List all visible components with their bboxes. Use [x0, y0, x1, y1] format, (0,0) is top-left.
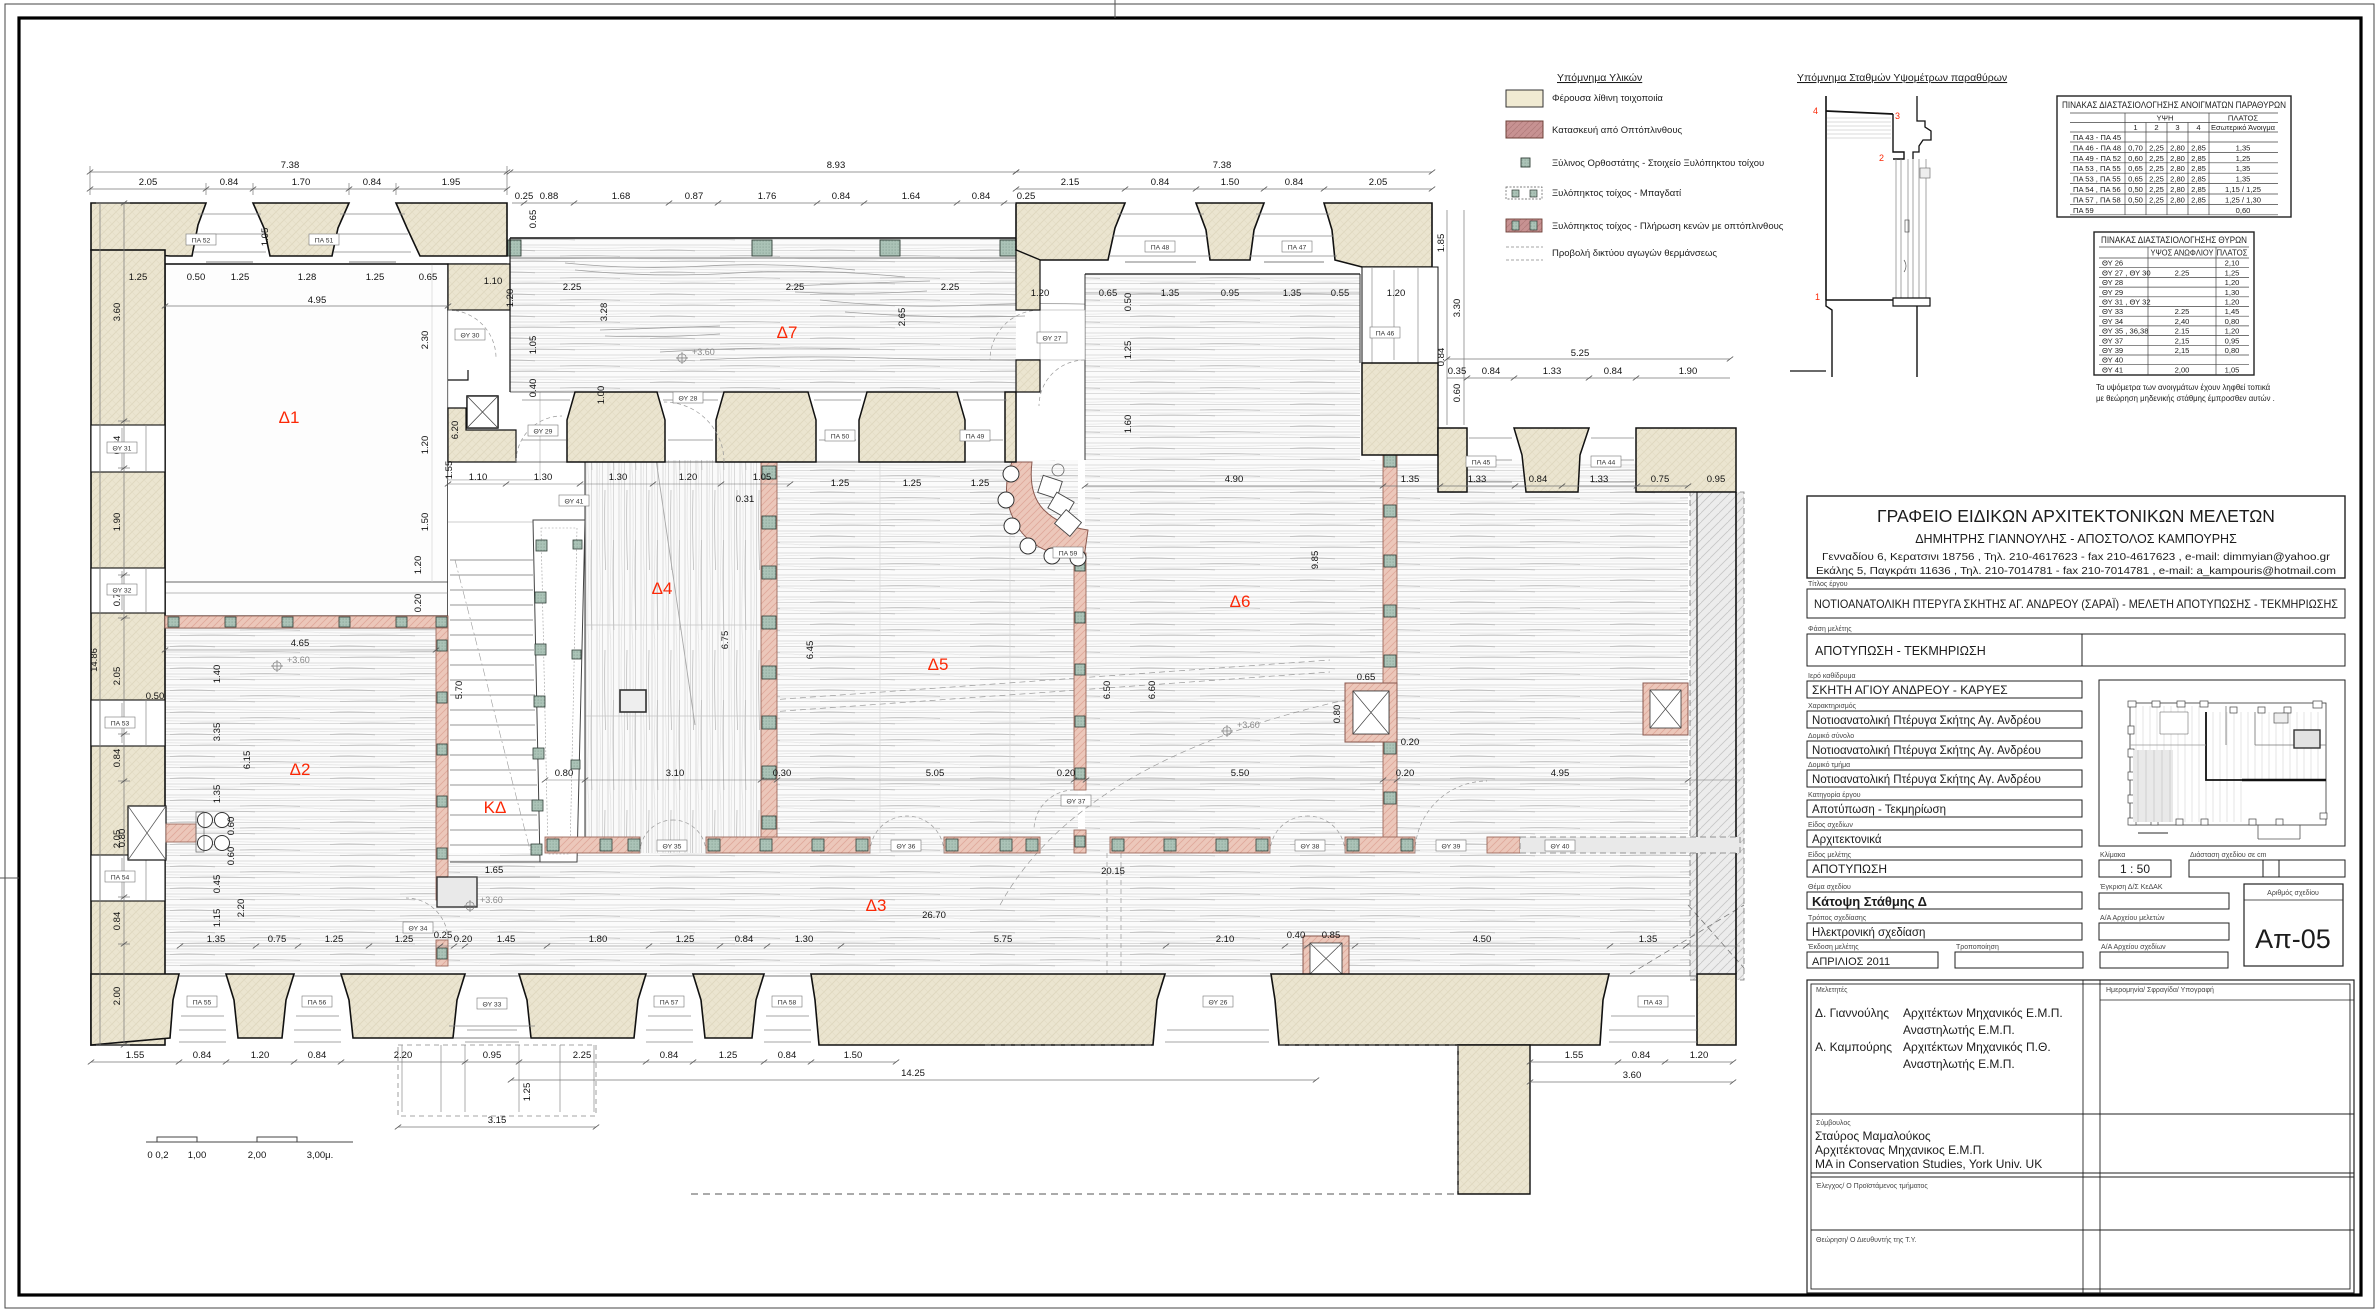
svg-text:4.50: 4.50: [1473, 934, 1492, 945]
svg-text:1.00: 1.00: [596, 386, 607, 405]
svg-text:ΠΛΑΤΟΣ: ΠΛΑΤΟΣ: [2228, 114, 2258, 123]
svg-text:1.25: 1.25: [522, 1083, 533, 1102]
svg-text:2.10: 2.10: [1216, 934, 1235, 945]
svg-text:ΠΑ 55: ΠΑ 55: [193, 1000, 212, 1007]
svg-text:1.60: 1.60: [1123, 415, 1134, 434]
svg-text:Κλίμακα: Κλίμακα: [2100, 851, 2125, 859]
svg-text:6.20: 6.20: [450, 421, 461, 440]
svg-text:2,25: 2,25: [2149, 175, 2164, 184]
svg-text:Κατηγορία έργου: Κατηγορία έργου: [1808, 791, 1861, 799]
svg-text:0.50: 0.50: [146, 691, 165, 702]
svg-text:2,25: 2,25: [2149, 154, 2164, 163]
svg-text:Ημερομηνία/ Σφραγίδα/ Υπογραφή: Ημερομηνία/ Σφραγίδα/ Υπογραφή: [2106, 986, 2214, 994]
svg-text:Δ. Γιαννούλης: Δ. Γιαννούλης: [1815, 1006, 1889, 1020]
svg-text:Υπόμνημα Υλικών: Υπόμνημα Υλικών: [1557, 72, 1642, 84]
svg-text:0.80: 0.80: [1332, 705, 1343, 724]
svg-text:2.65: 2.65: [897, 308, 908, 327]
svg-text:Δ5: Δ5: [928, 655, 949, 674]
svg-text:Θεώρηση/ Ο Διευθυντής της Τ.Υ.: Θεώρηση/ Ο Διευθυντής της Τ.Υ.: [1816, 1236, 1916, 1244]
svg-text:ΘΥ 34: ΘΥ 34: [409, 926, 428, 933]
svg-text:0.50: 0.50: [1123, 293, 1134, 312]
svg-text:1,15 / 1,25: 1,15 / 1,25: [2225, 185, 2261, 194]
svg-text:1,25: 1,25: [2236, 154, 2251, 163]
svg-text:0.80: 0.80: [117, 829, 128, 848]
svg-text:ΠΑ 48: ΠΑ 48: [1151, 245, 1170, 252]
svg-text:4: 4: [1813, 106, 1818, 116]
svg-text:1.10: 1.10: [469, 472, 488, 483]
svg-text:0.84: 0.84: [220, 177, 239, 188]
svg-text:0.84: 0.84: [363, 177, 382, 188]
svg-text:ΘΥ 37: ΘΥ 37: [1067, 799, 1086, 806]
svg-text:2.00: 2.00: [112, 987, 123, 1006]
svg-text:ΘΥ 37: ΘΥ 37: [2102, 336, 2123, 345]
svg-text:1,05: 1,05: [2225, 365, 2240, 374]
svg-text:ΠΑ 49: ΠΑ 49: [966, 434, 985, 441]
svg-text:ΘΥ 30: ΘΥ 30: [461, 333, 480, 340]
svg-text:0,65: 0,65: [2128, 175, 2143, 184]
svg-text:1.20: 1.20: [420, 436, 431, 455]
svg-text:5.75: 5.75: [994, 934, 1013, 945]
svg-text:ΑΠΡΙΛΙΟΣ 2011: ΑΠΡΙΛΙΟΣ 2011: [1812, 956, 1890, 968]
svg-text:ΠΑ 43: ΠΑ 43: [1644, 1000, 1663, 1007]
svg-text:0.25: 0.25: [434, 930, 453, 941]
svg-text:6.75: 6.75: [720, 631, 731, 650]
svg-text:ΘΥ 35: ΘΥ 35: [663, 844, 682, 851]
svg-text:ΠΑ 57: ΠΑ 57: [660, 1000, 679, 1007]
svg-text:Αρχιτέκτων Μηχανικός Ε.Μ.Π.: Αρχιτέκτων Μηχανικός Ε.Μ.Π.: [1903, 1006, 2063, 1020]
svg-text:ΠΑ 58: ΠΑ 58: [778, 1000, 797, 1007]
svg-text:1,00: 1,00: [188, 1150, 207, 1161]
svg-text:0.95: 0.95: [483, 1050, 502, 1061]
svg-text:6.45: 6.45: [805, 641, 816, 660]
svg-text:ΠΑ 43 - ΠΑ 45: ΠΑ 43 - ΠΑ 45: [2073, 133, 2121, 142]
svg-text:5.05: 5.05: [926, 768, 945, 779]
svg-text:3: 3: [1895, 111, 1900, 121]
svg-text:3.60: 3.60: [112, 303, 123, 322]
svg-text:1,30: 1,30: [2225, 288, 2240, 297]
svg-text:Δομικό σύνολο: Δομικό σύνολο: [1808, 732, 1854, 740]
svg-text:1.95: 1.95: [442, 177, 461, 188]
svg-text:3.30: 3.30: [1452, 299, 1463, 318]
svg-text:0,80: 0,80: [2225, 346, 2240, 355]
svg-text:Νοτιοανατολική Πτέρυγα Σκήτης: Νοτιοανατολική Πτέρυγα Σκήτης Αγ. Ανδρέο…: [1812, 745, 2041, 757]
svg-text:0,60: 0,60: [2128, 154, 2143, 163]
svg-text:1,35: 1,35: [2236, 143, 2251, 152]
svg-text:2,00: 2,00: [2175, 365, 2190, 374]
svg-text:0.84: 0.84: [1285, 177, 1304, 188]
svg-text:2,25: 2,25: [2149, 143, 2164, 152]
svg-text:0.65: 0.65: [419, 272, 438, 283]
svg-text:ΘΥ 33: ΘΥ 33: [483, 1002, 502, 1009]
svg-text:3,00μ.: 3,00μ.: [307, 1150, 334, 1161]
svg-text:ΠΑ 52: ΠΑ 52: [192, 238, 211, 245]
svg-text:0.84: 0.84: [1482, 366, 1501, 377]
svg-text:1.05: 1.05: [753, 472, 772, 483]
svg-text:2,80: 2,80: [2170, 154, 2185, 163]
svg-text:ΘΥ 36: ΘΥ 36: [897, 844, 916, 851]
svg-text:ΓΡΑΦΕΙΟ ΕΙΔΙΚΩΝ ΑΡΧΙΤΕΚΤΟΝΙΚΩΝ: ΓΡΑΦΕΙΟ ΕΙΔΙΚΩΝ ΑΡΧΙΤΕΚΤΟΝΙΚΩΝ ΜΕΛΕΤΩΝ: [1877, 506, 2275, 526]
svg-text:1.80: 1.80: [589, 934, 608, 945]
svg-text:ΘΥ 26: ΘΥ 26: [2102, 259, 2123, 268]
svg-text:0.95: 0.95: [1221, 288, 1240, 299]
svg-text:0.65: 0.65: [1357, 672, 1376, 683]
svg-text:2,85: 2,85: [2191, 143, 2206, 152]
svg-text:1.25: 1.25: [831, 478, 850, 489]
svg-text:0.84: 0.84: [193, 1050, 212, 1061]
svg-text:+3.60: +3.60: [480, 895, 503, 905]
svg-text:1.65: 1.65: [485, 865, 504, 876]
svg-text:2.25: 2.25: [2175, 268, 2190, 277]
svg-text:ΠΑ 56: ΠΑ 56: [308, 1000, 327, 1007]
svg-text:1.90: 1.90: [1679, 366, 1698, 377]
svg-text:0.40: 0.40: [528, 379, 539, 398]
svg-text:Δ4: Δ4: [652, 579, 673, 598]
svg-text:ΠΙΝΑΚΑΣ ΔΙΑΣΤΑΣΙΟΛΟΓΗΣΗΣ ΘΥΡ: ΠΙΝΑΚΑΣ ΔΙΑΣΤΑΣΙΟΛΟΓΗΣΗΣ ΘΥΡΩΝ: [2101, 235, 2247, 245]
svg-text:1.25: 1.25: [903, 478, 922, 489]
svg-text:2: 2: [2154, 123, 2158, 132]
svg-text:Αρχιτέκτων Μηχανικός Π.Θ.: Αρχιτέκτων Μηχανικός Π.Θ.: [1903, 1040, 2051, 1054]
svg-text:1.15: 1.15: [212, 909, 223, 928]
svg-text:4.65: 4.65: [291, 638, 310, 649]
svg-text:1.90: 1.90: [112, 513, 123, 532]
svg-text:2,85: 2,85: [2191, 164, 2206, 173]
svg-text:Α/Α Αρχείου μελετών: Α/Α Αρχείου μελετών: [2100, 914, 2165, 922]
svg-text:0.31: 0.31: [736, 494, 755, 505]
svg-text:ΠΑ 53 , ΠΑ 55: ΠΑ 53 , ΠΑ 55: [2073, 164, 2121, 173]
svg-text:2.05: 2.05: [139, 177, 158, 188]
svg-text:1.33: 1.33: [1468, 474, 1487, 485]
svg-text:1.25: 1.25: [395, 934, 414, 945]
svg-text:1.45: 1.45: [497, 934, 516, 945]
svg-text:ΘΥ 27 , ΘΥ 30: ΘΥ 27 , ΘΥ 30: [2102, 268, 2151, 277]
svg-text:Είδος σχεδίων: Είδος σχεδίων: [1808, 821, 1853, 829]
svg-text:ΠΑ 46 - ΠΑ 48: ΠΑ 46 - ΠΑ 48: [2073, 143, 2121, 152]
svg-text:2,25: 2,25: [2149, 164, 2164, 173]
svg-text:0.75: 0.75: [268, 934, 287, 945]
svg-text:Έγκριση Δ/Σ ΚεΔΑΚ: Έγκριση Δ/Σ ΚεΔΑΚ: [2099, 884, 2163, 891]
svg-text:1.70: 1.70: [292, 177, 311, 188]
svg-text:1.20: 1.20: [251, 1050, 270, 1061]
svg-text:Δ3: Δ3: [866, 896, 887, 915]
svg-text:0.87: 0.87: [685, 191, 704, 202]
svg-text:6.15: 6.15: [242, 751, 253, 770]
svg-text:1.68: 1.68: [612, 191, 631, 202]
svg-text:ΚΔ: ΚΔ: [484, 798, 507, 817]
svg-text:2,80: 2,80: [2170, 185, 2185, 194]
svg-text:2,80: 2,80: [2170, 195, 2185, 204]
svg-text:Δομικό τμήμα: Δομικό τμήμα: [1808, 761, 1850, 769]
svg-text:ΠΑ 53 , ΠΑ 55: ΠΑ 53 , ΠΑ 55: [2073, 175, 2121, 184]
svg-text:Δ6: Δ6: [1230, 592, 1251, 611]
svg-text:ΑΠΟΤΥΠΩΣΗ: ΑΠΟΤΥΠΩΣΗ: [1812, 862, 1887, 876]
svg-text:14.86: 14.86: [89, 648, 100, 672]
svg-text:0.60: 0.60: [226, 817, 237, 836]
svg-text:1.35: 1.35: [1161, 288, 1180, 299]
svg-text:0.20: 0.20: [413, 594, 424, 613]
svg-text:0,80: 0,80: [2225, 317, 2240, 326]
svg-text:3.35: 3.35: [212, 723, 223, 742]
svg-text:0.84: 0.84: [1604, 366, 1623, 377]
svg-text:0 0,2: 0 0,2: [147, 1150, 168, 1161]
svg-text:7.38: 7.38: [1213, 160, 1232, 171]
svg-text:Απ-05: Απ-05: [2255, 924, 2331, 954]
svg-text:Προβολή δικτύου αγωγών θερμάνσ: Προβολή δικτύου αγωγών θερμάνσεως: [1552, 248, 1717, 259]
svg-text:8.93: 8.93: [827, 160, 846, 171]
svg-text:4.90: 4.90: [1225, 474, 1244, 485]
svg-text:ΠΑ 47: ΠΑ 47: [1288, 245, 1307, 252]
svg-text:3: 3: [2175, 123, 2179, 132]
svg-text:2.05: 2.05: [1369, 177, 1388, 188]
svg-text:5.25: 5.25: [1571, 348, 1590, 359]
svg-text:ΘΥ 29: ΘΥ 29: [534, 429, 553, 436]
svg-text:ΠΑ 50: ΠΑ 50: [831, 434, 850, 441]
svg-text:1.20: 1.20: [413, 556, 424, 575]
svg-text:1.35: 1.35: [212, 785, 223, 804]
svg-text:ΘΥ 28: ΘΥ 28: [2102, 278, 2123, 287]
svg-text:0.95: 0.95: [1707, 474, 1726, 485]
svg-text:0.25: 0.25: [515, 191, 534, 202]
svg-text:1,20: 1,20: [2225, 278, 2240, 287]
svg-text:ΘΥ 32: ΘΥ 32: [113, 588, 132, 595]
svg-text:2,00: 2,00: [248, 1150, 267, 1161]
svg-text:Ξύλινος Ορθοστάτης - Στοιχείο: Ξύλινος Ορθοστάτης - Στοιχείο Ξυλόπηκτου…: [1552, 158, 1764, 169]
svg-text:2.25: 2.25: [573, 1050, 592, 1061]
svg-text:ΑΠΟΤΥΠΩΣΗ - ΤΕΚΜΗΡΙΩΣΗ: ΑΠΟΤΥΠΩΣΗ - ΤΕΚΜΗΡΙΩΣΗ: [1815, 644, 1986, 658]
svg-text:1,20: 1,20: [2225, 327, 2240, 336]
svg-text:+3.60: +3.60: [287, 655, 310, 665]
svg-text:2.15: 2.15: [2175, 327, 2190, 336]
svg-text:5.50: 5.50: [1231, 768, 1250, 779]
svg-text:0.40: 0.40: [1287, 930, 1306, 941]
svg-text:ΠΑ 57 , ΠΑ 58: ΠΑ 57 , ΠΑ 58: [2073, 195, 2121, 204]
svg-text:ΘΥ 41: ΘΥ 41: [565, 499, 584, 506]
svg-text:0.45: 0.45: [212, 875, 223, 894]
svg-text:1.25: 1.25: [325, 934, 344, 945]
svg-text:1.25: 1.25: [971, 478, 990, 489]
svg-text:2,85: 2,85: [2191, 154, 2206, 163]
svg-text:Τρόπος σχεδίασης: Τρόπος σχεδίασης: [1808, 914, 1867, 922]
svg-text:0,50: 0,50: [2128, 195, 2143, 204]
svg-text:0.84: 0.84: [112, 749, 123, 768]
svg-text:3.28: 3.28: [599, 303, 610, 322]
svg-text:Τα υψόμετρα των ανοιγμάτων έχ: Τα υψόμετρα των ανοιγμάτων έχουν ληφθεί …: [2096, 383, 2271, 392]
svg-text:ΘΥ 35 , 36,38: ΘΥ 35 , 36,38: [2102, 327, 2148, 336]
svg-text:ΠΑ 45: ΠΑ 45: [1472, 460, 1491, 467]
svg-text:1.20: 1.20: [679, 472, 698, 483]
svg-text:ΠΑ 59: ΠΑ 59: [1059, 551, 1078, 558]
svg-text:0.25: 0.25: [1017, 191, 1036, 202]
svg-text:1.30: 1.30: [609, 472, 628, 483]
svg-text:ΘΥ 26: ΘΥ 26: [1209, 1000, 1228, 1007]
svg-text:Ξυλόπηκτος τοίχος - Πλήρωση κε: Ξυλόπηκτος τοίχος - Πλήρωση κενών με οπτ…: [1552, 221, 1784, 232]
svg-text:0.84: 0.84: [1151, 177, 1170, 188]
svg-text:Δ7: Δ7: [777, 323, 798, 342]
svg-text:1 : 50: 1 : 50: [2120, 862, 2150, 876]
svg-text:Τίτλος έργου: Τίτλος έργου: [1808, 580, 1848, 588]
svg-text:ΣΚΗΤΗ ΑΓΙΟΥ ΑΝΔΡΕΟΥ - ΚΑΡΥΕΣ: ΣΚΗΤΗ ΑΓΙΟΥ ΑΝΔΡΕΟΥ - ΚΑΡΥΕΣ: [1812, 683, 2008, 697]
svg-text:0.20: 0.20: [454, 934, 473, 945]
svg-text:1.35: 1.35: [207, 934, 226, 945]
svg-text:0.35: 0.35: [1448, 366, 1467, 377]
svg-text:Νοτιοανατολική Πτέρυγα Σκήτης: Νοτιοανατολική Πτέρυγα Σκήτης Αγ. Ανδρέο…: [1812, 774, 2041, 786]
svg-text:Χαρακτηρισμός: Χαρακτηρισμός: [1808, 702, 1857, 710]
svg-text:2.05: 2.05: [112, 667, 123, 686]
svg-text:ΘΥ 33: ΘΥ 33: [2102, 307, 2123, 316]
svg-text:0,70: 0,70: [2128, 143, 2143, 152]
svg-text:1.20: 1.20: [1031, 288, 1050, 299]
svg-text:0,95: 0,95: [2225, 336, 2240, 345]
svg-text:0.88: 0.88: [540, 191, 559, 202]
svg-text:9.85: 9.85: [1310, 551, 1321, 570]
svg-text:ΠΑ 46: ΠΑ 46: [1376, 331, 1395, 338]
svg-text:0.65: 0.65: [1099, 288, 1118, 299]
svg-text:Ξυλόπηκτος τοίχος - Μπαγδατί: Ξυλόπηκτος τοίχος - Μπαγδατί: [1552, 188, 1682, 199]
svg-text:1.50: 1.50: [844, 1050, 863, 1061]
svg-text:1.40: 1.40: [212, 665, 223, 684]
svg-text:1.64: 1.64: [902, 191, 921, 202]
svg-text:ΔΗΜΗΤΡΗΣ ΓΙΑΝΝΟΥΛΗΣ - ΑΠΟΣΤΟ: ΔΗΜΗΤΡΗΣ ΓΙΑΝΝΟΥΛΗΣ - ΑΠΟΣΤΟΛΟΣ ΚΑΜΠΟΥΡΗ…: [1915, 532, 2237, 546]
svg-text:1.55: 1.55: [126, 1050, 145, 1061]
svg-text:+3.60: +3.60: [692, 347, 715, 357]
svg-text:Τροποποίηση: Τροποποίηση: [1956, 943, 1999, 951]
svg-text:1.50: 1.50: [1221, 177, 1240, 188]
svg-text:1.05: 1.05: [528, 336, 539, 355]
svg-text:0,65: 0,65: [2128, 164, 2143, 173]
svg-text:Εκάλης 5, Παγκράτι 11636 , Τηλ: Εκάλης 5, Παγκράτι 11636 , Τηλ. 210-7014…: [1816, 565, 2336, 577]
svg-text:Δ2: Δ2: [290, 760, 311, 779]
svg-text:2,15: 2,15: [2175, 336, 2190, 345]
svg-text:Αναστηλωτής Ε.Μ.Π.: Αναστηλωτής Ε.Μ.Π.: [1903, 1023, 2015, 1037]
svg-text:1: 1: [1815, 292, 1820, 302]
svg-text:ΠΑ 51: ΠΑ 51: [315, 238, 334, 245]
svg-text:Διάσταση σχεδίου σε cm: Διάσταση σχεδίου σε cm: [2190, 851, 2267, 859]
svg-text:0.50: 0.50: [187, 272, 206, 283]
svg-text:5.70: 5.70: [454, 681, 465, 700]
svg-text:ΘΥ 39: ΘΥ 39: [2102, 346, 2123, 355]
svg-text:1.35: 1.35: [1401, 474, 1420, 485]
svg-text:0.55: 0.55: [1331, 288, 1350, 299]
svg-text:Δ1: Δ1: [279, 408, 300, 427]
svg-text:Νοτιοανατολική Πτέρυγα Σκήτης: Νοτιοανατολική Πτέρυγα Σκήτης Αγ. Ανδρέο…: [1812, 715, 2041, 727]
svg-text:Αρχιτεκτονικά: Αρχιτεκτονικά: [1812, 834, 1882, 846]
svg-text:ΘΥ 31 , ΘΥ 32: ΘΥ 31 , ΘΥ 32: [2102, 298, 2151, 307]
svg-text:2,25: 2,25: [2149, 185, 2164, 194]
svg-text:3.10: 3.10: [666, 768, 685, 779]
svg-text:2,25: 2,25: [2149, 195, 2164, 204]
svg-text:1.20: 1.20: [1690, 1050, 1709, 1061]
svg-text:0.84: 0.84: [308, 1050, 327, 1061]
svg-text:1.55: 1.55: [1565, 1050, 1584, 1061]
svg-text:2,85: 2,85: [2191, 185, 2206, 194]
svg-text:1,25 / 1,30: 1,25 / 1,30: [2225, 195, 2261, 204]
svg-text:ΘΥ 39: ΘΥ 39: [1442, 844, 1461, 851]
svg-text:0.84: 0.84: [735, 934, 754, 945]
svg-text:1.76: 1.76: [758, 191, 777, 202]
svg-text:ΠΑ 53: ΠΑ 53: [111, 721, 130, 728]
svg-text:Σταύρος Μαμαλούκος: Σταύρος Μαμαλούκος: [1815, 1129, 1931, 1143]
svg-text:1.10: 1.10: [484, 276, 503, 287]
svg-text:Έκδοση μελέτης: Έκδοση μελέτης: [1807, 943, 1859, 951]
svg-text:ΘΥ 34: ΘΥ 34: [2102, 317, 2123, 326]
svg-text:ΘΥ 40: ΘΥ 40: [2102, 356, 2123, 365]
svg-text:ΠΑ 44: ΠΑ 44: [1597, 460, 1616, 467]
svg-text:Σύμβουλος: Σύμβουλος: [1816, 1119, 1851, 1127]
svg-text:0.20: 0.20: [1396, 768, 1415, 779]
svg-text:1.50: 1.50: [420, 513, 431, 532]
svg-text:Α. Καμπούρης: Α. Καμπούρης: [1815, 1040, 1892, 1054]
svg-text:ΝΟΤΙΟΑΝΑΤΟΛΙΚΗ ΠΤΕΡΥΓΑ ΣΚΗΤΗΣ: ΝΟΤΙΟΑΝΑΤΟΛΙΚΗ ΠΤΕΡΥΓΑ ΣΚΗΤΗΣ ΑΓ. ΑΝΔΡΕΟ…: [1814, 598, 2338, 611]
svg-text:4: 4: [2196, 123, 2200, 132]
svg-text:2,85: 2,85: [2191, 195, 2206, 204]
svg-text:Εσωτερικό Άνοιγμα: Εσωτερικό Άνοιγμα: [2211, 123, 2276, 132]
svg-text:0.30: 0.30: [773, 768, 792, 779]
svg-text:1,20: 1,20: [2225, 298, 2240, 307]
svg-text:2,15: 2,15: [2175, 346, 2190, 355]
svg-text:1.05: 1.05: [260, 228, 271, 247]
svg-text:4.95: 4.95: [1551, 768, 1570, 779]
svg-text:0,60: 0,60: [2236, 206, 2251, 215]
svg-text:1,35: 1,35: [2236, 164, 2251, 173]
svg-text:1.35: 1.35: [1639, 934, 1658, 945]
svg-text:7.38: 7.38: [281, 160, 300, 171]
svg-text:2,80: 2,80: [2170, 164, 2185, 173]
svg-text:Ιερό καθίδρυμα: Ιερό καθίδρυμα: [1808, 672, 1856, 680]
svg-text:2.20: 2.20: [236, 899, 247, 918]
svg-text:0.84: 0.84: [1529, 474, 1548, 485]
svg-text:0.80: 0.80: [555, 768, 574, 779]
svg-text:6.60: 6.60: [1147, 681, 1158, 700]
svg-text:1.25: 1.25: [1123, 341, 1134, 360]
svg-text:1.33: 1.33: [1590, 474, 1609, 485]
svg-text:ΠΛΑΤΟΣ: ΠΛΑΤΟΣ: [2217, 249, 2248, 258]
svg-text:0.84: 0.84: [778, 1050, 797, 1061]
svg-text:ΠΑ 59: ΠΑ 59: [2073, 206, 2094, 215]
svg-text:ΘΥ 41: ΘΥ 41: [2102, 365, 2123, 374]
svg-text:ΠΑ 54 , ΠΑ 56: ΠΑ 54 , ΠΑ 56: [2073, 185, 2121, 194]
svg-text:0.75: 0.75: [1651, 474, 1670, 485]
svg-text:1.33: 1.33: [1543, 366, 1562, 377]
svg-text:1.30: 1.30: [534, 472, 553, 483]
svg-text:ΘΥ 28: ΘΥ 28: [679, 396, 698, 403]
svg-text:+3.60: +3.60: [1237, 720, 1260, 730]
svg-text:Αριθμός σχεδίου: Αριθμός σχεδίου: [2267, 889, 2319, 897]
svg-text:Φάση μελέτης: Φάση μελέτης: [1808, 625, 1852, 633]
svg-text:1.25: 1.25: [231, 272, 250, 283]
svg-text:με θεώρηση μηδενικής στάθμης έ: με θεώρηση μηδενικής στάθμης έμπροσθεν α…: [2096, 394, 2275, 403]
svg-text:2.20: 2.20: [394, 1050, 413, 1061]
svg-text:Μελετητές: Μελετητές: [1816, 986, 1848, 994]
svg-text:0.84: 0.84: [832, 191, 851, 202]
svg-text:MA in Conservation Studies, Yo: MA in Conservation Studies, York Univ. U…: [1815, 1157, 2042, 1171]
svg-text:2.25: 2.25: [2175, 307, 2190, 316]
svg-text:3.60: 3.60: [1623, 1070, 1642, 1081]
svg-text:Φέρουσα λίθινη τοιχοποιία: Φέρουσα λίθινη τοιχοποιία: [1552, 93, 1663, 104]
svg-text:0.85: 0.85: [1322, 930, 1341, 941]
svg-text:ΘΥ 38: ΘΥ 38: [1301, 844, 1320, 851]
svg-text:3.15: 3.15: [488, 1115, 507, 1126]
svg-text:2.15: 2.15: [1061, 177, 1080, 188]
svg-text:ΠΑ 54: ΠΑ 54: [111, 875, 130, 882]
svg-text:1: 1: [2133, 123, 2137, 132]
svg-text:Αναστηλωτής Ε.Μ.Π.: Αναστηλωτής Ε.Μ.Π.: [1903, 1057, 2015, 1071]
svg-text:ΥΨΟΣ ΑΝΩΦΛΙΟΥ: ΥΨΟΣ ΑΝΩΦΛΙΟΥ: [2151, 249, 2215, 258]
svg-text:1.20: 1.20: [1387, 288, 1406, 299]
svg-text:0.60: 0.60: [226, 847, 237, 866]
svg-text:Γενναδίου 6, Κερατσινι 18756 ,: Γενναδίου 6, Κερατσινι 18756 , Τηλ. 210-…: [1822, 551, 2331, 563]
svg-text:2,80: 2,80: [2170, 175, 2185, 184]
svg-text:2: 2: [1879, 153, 1884, 163]
svg-text:1.25: 1.25: [719, 1050, 738, 1061]
